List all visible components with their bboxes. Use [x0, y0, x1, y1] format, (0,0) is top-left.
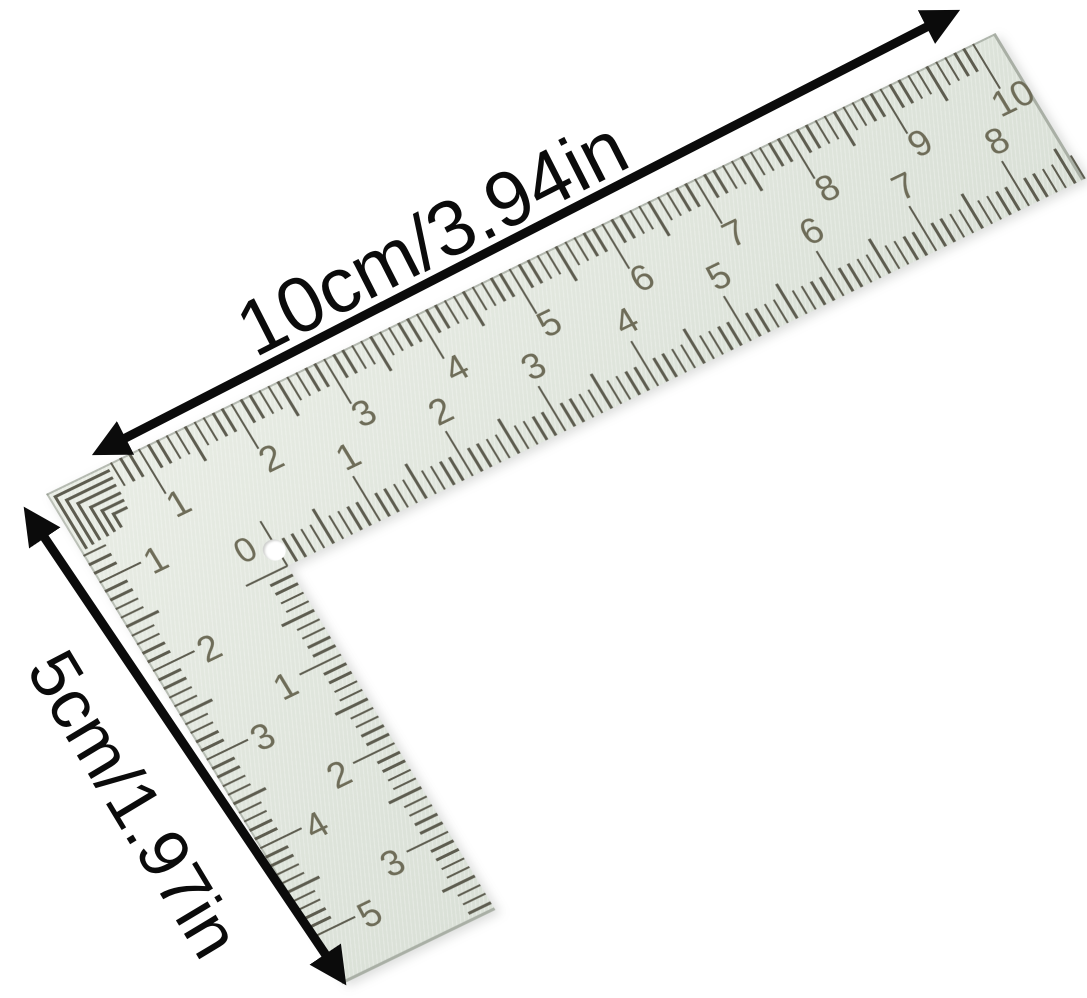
- product-photo: 10cm/3.94in 5cm/1.97in 12345678910123456…: [0, 0, 1087, 998]
